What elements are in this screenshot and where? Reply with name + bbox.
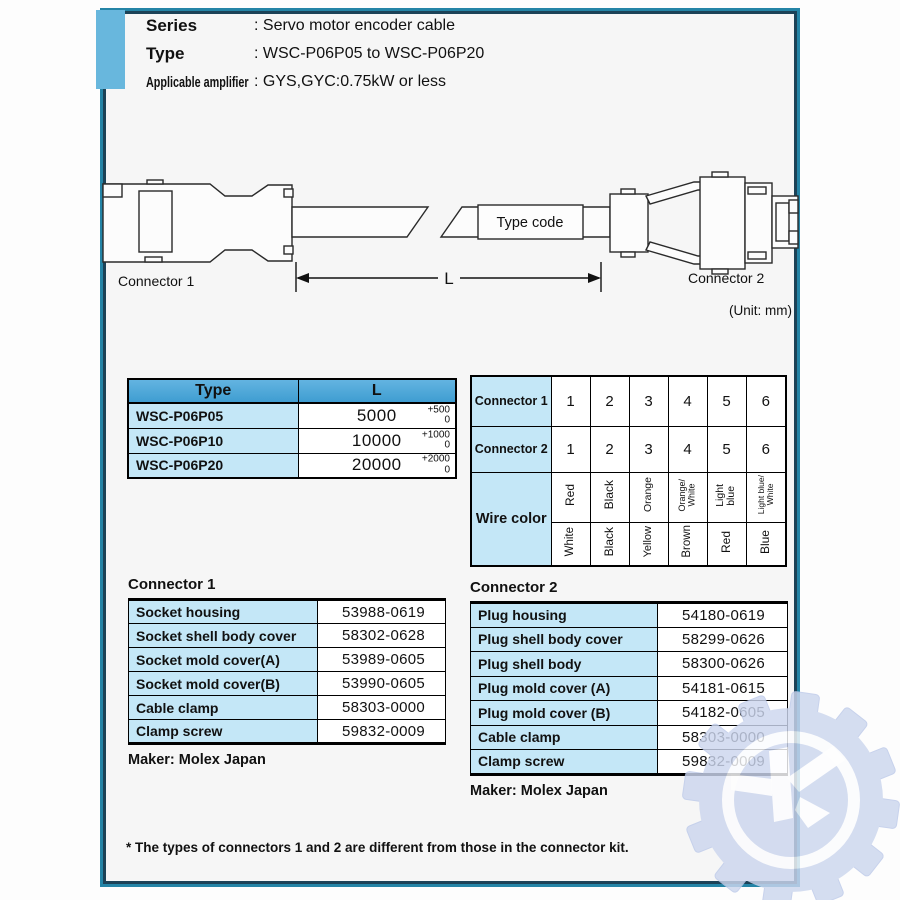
col-header-l: L — [298, 379, 456, 403]
part-number: 53990-0605 — [318, 672, 446, 696]
wire-color-cell: Red — [707, 522, 746, 566]
length-cell: 10000 +1000 0 — [298, 428, 456, 453]
type-value: : WSC-P06P05 to WSC-P06P20 — [254, 45, 484, 63]
tolerance-plus: +500 — [427, 405, 450, 416]
connector1-label: Connector 1 — [118, 273, 194, 289]
unit-note: (Unit: mm) — [729, 303, 792, 318]
part-name: Socket housing — [129, 600, 318, 624]
part-name: Cable clamp — [129, 696, 318, 720]
pin-number: 6 — [746, 426, 786, 472]
connector2-drawing — [610, 172, 798, 274]
part-name: Clamp screw — [129, 720, 318, 744]
connector1-drawing — [103, 180, 293, 262]
part-name: Plug mold cover (B) — [471, 701, 658, 726]
part-name: Plug shell body — [471, 652, 658, 677]
connector2-parts-table: Plug housing 54180-0619 Plug shell body … — [470, 601, 788, 776]
cable-diagram: Type code L Connecto — [100, 170, 800, 320]
connector2-maker-note: Maker: Molex Japan — [470, 783, 788, 799]
pin-number: 3 — [629, 426, 668, 472]
table-row: Socket mold cover(B) 53990-0605 — [129, 672, 446, 696]
pin-assignment-table: Connector 1 1 2 3 4 5 6 Connector 2 1 2 … — [470, 375, 787, 567]
wire-color-row-1: Wire color Red Black Orange Orange/ Whit… — [471, 472, 786, 522]
part-number: 59832-0009 — [318, 720, 446, 744]
wire-color-cell: Black — [590, 472, 629, 522]
length-table-header: Type L — [128, 379, 456, 403]
part-name: Cable clamp — [471, 725, 658, 750]
type-code-label: Type code — [497, 215, 564, 231]
pin-number: 5 — [707, 426, 746, 472]
part-number: 58303-0000 — [318, 696, 446, 720]
length-cell: 20000 +2000 0 — [298, 453, 456, 478]
part-number: 58299-0626 — [658, 627, 788, 652]
series-value: : Servo motor encoder cable — [254, 17, 455, 35]
part-number: 58303-0000 — [658, 725, 788, 750]
wire-color-cell: Black — [590, 522, 629, 566]
wire-color-cell: Orange — [629, 472, 668, 522]
datasheet-page: Series : Servo motor encoder cable Type … — [0, 0, 900, 900]
connector2-label: Connector 2 — [688, 270, 764, 286]
pin-number: 4 — [668, 376, 707, 426]
part-name: Socket mold cover(A) — [129, 648, 318, 672]
pin-number: 1 — [551, 376, 590, 426]
part-name: Socket shell body cover — [129, 624, 318, 648]
connector2-parts-title: Connector 2 — [470, 579, 788, 596]
table-row: Plug shell body cover 58299-0626 — [471, 627, 788, 652]
wire-color-cell: Red — [551, 472, 590, 522]
table-row: WSC-P06P10 10000 +1000 0 — [128, 428, 456, 453]
length-symbol: L — [444, 269, 453, 288]
part-name: Socket mold cover(B) — [129, 672, 318, 696]
wire-color-cell: Light blue — [707, 472, 746, 522]
header-accent-bar — [96, 10, 125, 89]
table-row: Clamp screw 59832-0009 — [471, 750, 788, 775]
part-number: 54180-0619 — [658, 603, 788, 628]
footnote: * The types of connectors 1 and 2 are di… — [126, 840, 629, 855]
part-name: Plug housing — [471, 603, 658, 628]
length-value: 20000 — [352, 455, 402, 474]
amplifier-label: Applicable amplifier — [146, 74, 254, 91]
series-row: Series : Servo motor encoder cable — [146, 12, 484, 40]
tolerance-zero: 0 — [444, 441, 450, 452]
table-row: Cable clamp 58303-0000 — [471, 725, 788, 750]
wire-color-cell: Orange/ White — [668, 472, 707, 522]
part-number: 53989-0605 — [318, 648, 446, 672]
connector1-maker-note: Maker: Molex Japan — [128, 752, 446, 768]
part-name: Plug shell body cover — [471, 627, 658, 652]
table-row: WSC-P06P05 5000 +500 0 — [128, 403, 456, 428]
pin-number: 2 — [590, 426, 629, 472]
connector1-pin-row-label: Connector 1 — [471, 376, 551, 426]
amplifier-value: : GYS,GYC:0.75kW or less — [254, 73, 446, 91]
part-number: 58302-0628 — [318, 624, 446, 648]
table-row: Cable clamp 58303-0000 — [129, 696, 446, 720]
part-name: Clamp screw — [471, 750, 658, 775]
table-row: Socket shell body cover 58302-0628 — [129, 624, 446, 648]
connector1-parts-section: Connector 1 Socket housing 53988-0619 So… — [128, 576, 446, 768]
pin-number: 4 — [668, 426, 707, 472]
type-cell: WSC-P06P10 — [128, 428, 298, 453]
part-number: 54182-0605 — [658, 701, 788, 726]
pin-number: 6 — [746, 376, 786, 426]
table-row: Plug housing 54180-0619 — [471, 603, 788, 628]
length-cell: 5000 +500 0 — [298, 403, 456, 428]
table-row: Socket mold cover(A) 53989-0605 — [129, 648, 446, 672]
tolerance-plus: +1000 — [422, 430, 450, 441]
table-row: Clamp screw 59832-0009 — [129, 720, 446, 744]
part-number: 53988-0619 — [318, 600, 446, 624]
table-row: Plug mold cover (B) 54182-0605 — [471, 701, 788, 726]
wire-color-label: Wire color — [471, 472, 551, 566]
series-label: Series — [146, 16, 254, 36]
wire-color-cell: White — [551, 522, 590, 566]
wire-color-cell: Blue — [746, 522, 786, 566]
table-row: WSC-P06P20 20000 +2000 0 — [128, 453, 456, 478]
type-code-callout: Type code — [478, 205, 583, 239]
length-table: Type L WSC-P06P05 5000 +500 0 WSC-P06P10… — [127, 378, 457, 479]
connector1-pin-row: Connector 1 1 2 3 4 5 6 — [471, 376, 786, 426]
connector1-parts-title: Connector 1 — [128, 576, 446, 593]
tolerance: +500 0 — [427, 405, 450, 426]
type-cell: WSC-P06P20 — [128, 453, 298, 478]
connector2-pin-row: Connector 2 1 2 3 4 5 6 — [471, 426, 786, 472]
wire-color-cell: Light blue/ White — [746, 472, 786, 522]
wire-color-cell: Yellow — [629, 522, 668, 566]
pin-number: 1 — [551, 426, 590, 472]
type-label: Type — [146, 44, 254, 64]
connector2-pin-row-label: Connector 2 — [471, 426, 551, 472]
table-row: Plug shell body 58300-0626 — [471, 652, 788, 677]
connector1-parts-table: Socket housing 53988-0619 Socket shell b… — [128, 598, 446, 745]
length-value: 10000 — [352, 431, 402, 450]
amplifier-row: Applicable amplifier : GYS,GYC:0.75kW or… — [146, 68, 484, 96]
table-row: Socket housing 53988-0619 — [129, 600, 446, 624]
spec-header: Series : Servo motor encoder cable Type … — [146, 12, 484, 96]
pin-number: 5 — [707, 376, 746, 426]
pin-number: 3 — [629, 376, 668, 426]
part-name: Plug mold cover (A) — [471, 676, 658, 701]
part-number: 54181-0615 — [658, 676, 788, 701]
type-row: Type : WSC-P06P05 to WSC-P06P20 — [146, 40, 484, 68]
table-row: Plug mold cover (A) 54181-0615 — [471, 676, 788, 701]
tolerance-zero: 0 — [444, 465, 450, 476]
pin-number: 2 — [590, 376, 629, 426]
part-number: 59832-0009 — [658, 750, 788, 775]
col-header-type: Type — [128, 379, 298, 403]
wire-color-cell: Brown — [668, 522, 707, 566]
connector2-parts-section: Connector 2 Plug housing 54180-0619 Plug… — [470, 579, 788, 799]
part-number: 58300-0626 — [658, 652, 788, 677]
tolerance-plus: +2000 — [422, 455, 450, 466]
tolerance: +2000 0 — [422, 455, 450, 476]
tolerance-zero: 0 — [444, 416, 450, 427]
tolerance: +1000 0 — [422, 430, 450, 451]
length-value: 5000 — [357, 406, 397, 425]
type-cell: WSC-P06P05 — [128, 403, 298, 428]
